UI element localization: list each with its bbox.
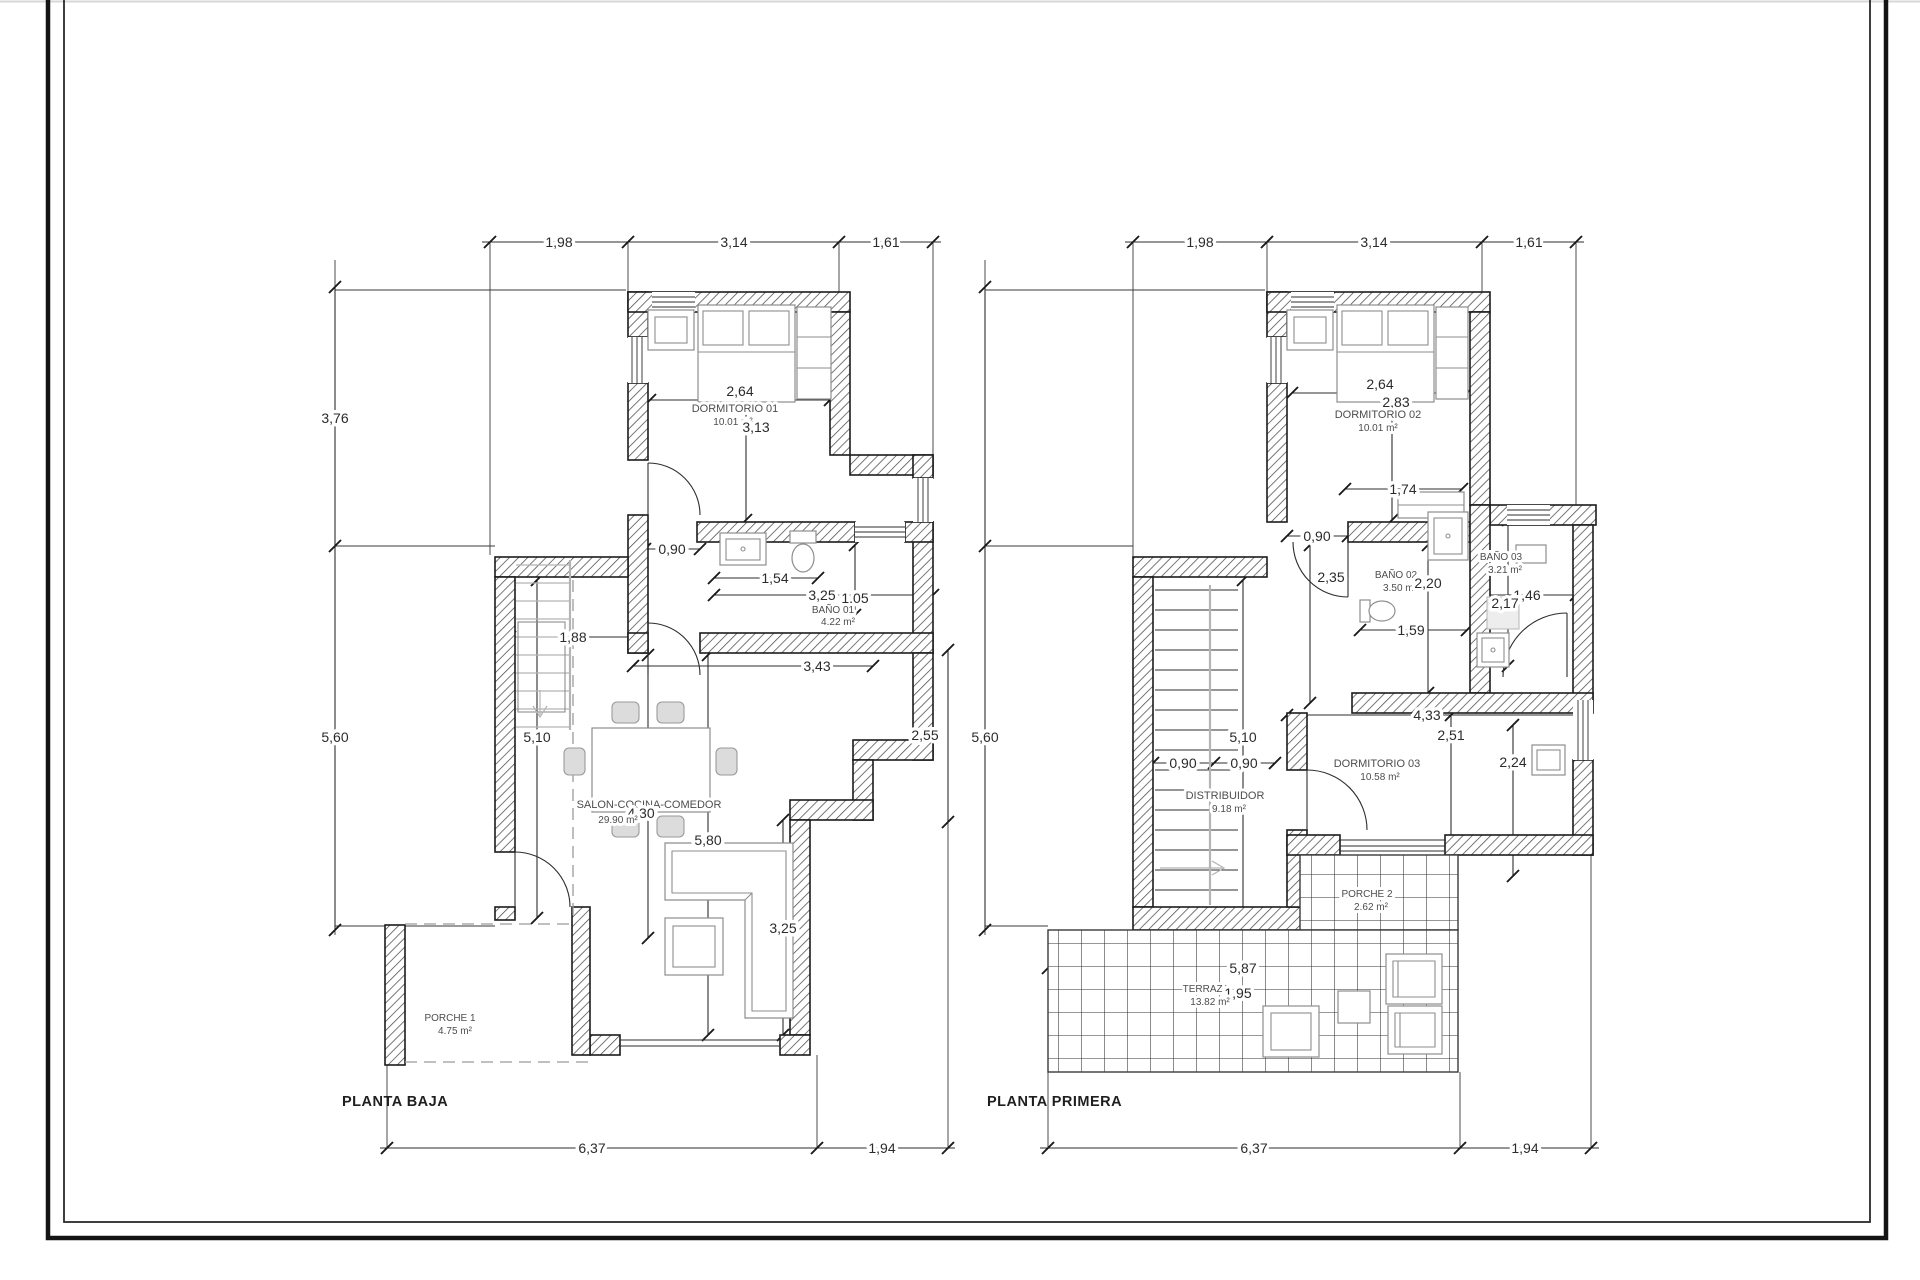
room-label: DISTRIBUIDOR <box>1186 790 1265 802</box>
dim-label: 2,17 <box>1491 595 1518 611</box>
dim-label: 5,10 <box>523 729 550 745</box>
chair <box>657 816 684 837</box>
room-area: 4.75 m² <box>438 1026 473 1037</box>
room-area: 3.50 m² <box>1383 583 1418 594</box>
dim-label: 0,90 <box>1169 755 1196 771</box>
page-background <box>0 0 1920 1280</box>
dim-label: 4,33 <box>1413 707 1440 723</box>
dim-label: 2,83 <box>1382 394 1409 410</box>
dim-label: 3,76 <box>321 410 348 426</box>
dim-label: 2,51 <box>1437 727 1464 743</box>
dim-label: 1,61 <box>1515 234 1542 250</box>
plan-title: PLANTA BAJA <box>342 1094 448 1110</box>
room-label: PORCHE 2 <box>1341 889 1393 900</box>
dim-label: 1,61 <box>872 234 899 250</box>
room-label: BAÑO 02 <box>1375 568 1418 581</box>
dim-label: 1,59 <box>1397 622 1424 638</box>
room-area: 29.90 m² <box>598 815 638 826</box>
room-area: 10.58 m² <box>1360 772 1400 783</box>
side-table <box>1338 991 1370 1023</box>
chair <box>716 748 737 775</box>
dim-label: 3,43 <box>803 658 830 674</box>
room-area: 4.22 m² <box>821 617 856 628</box>
dim-label: 0,90 <box>1230 755 1257 771</box>
dim-label: 0,90 <box>1303 528 1330 544</box>
dim-label: 1,98 <box>545 234 572 250</box>
dim-label: 5,80 <box>694 832 721 848</box>
dim-label: 3,25 <box>769 920 796 936</box>
room-label: DORMITORIO 03 <box>1334 758 1421 770</box>
dim-label: 5,10 <box>1229 729 1256 745</box>
dim-label: 1,74 <box>1389 481 1416 497</box>
plan-title: PLANTA PRIMERA <box>987 1094 1122 1110</box>
dim-label: 3,14 <box>1360 234 1387 250</box>
chair <box>657 702 684 723</box>
dim-label: 2,55 <box>911 727 938 743</box>
floorplan-canvas: 1,98 3,14 1,61 3,76 5,60 6,37 1,94 2,64 … <box>0 0 1920 1280</box>
dim-label: 2,64 <box>1366 376 1393 392</box>
dim-label: 2,64 <box>726 383 753 399</box>
dim-label: 5,60 <box>971 729 998 745</box>
room-label: DORMITORIO 02 <box>1335 409 1422 421</box>
room-label: BAÑO 03 <box>1480 550 1523 563</box>
room-area: 9.18 m² <box>1212 804 1247 815</box>
room-area: 3.21 m² <box>1488 565 1523 576</box>
room-area: 13.82 m² <box>1190 997 1230 1008</box>
dim-label: 1,05 <box>841 590 868 606</box>
dim-label: 1,98 <box>1186 234 1213 250</box>
room-label: PORCHE 1 <box>424 1013 476 1024</box>
dim-label: 1,94 <box>868 1140 895 1156</box>
dim-label: 1,88 <box>559 629 586 645</box>
wardrobe <box>1436 307 1468 399</box>
dim-label: 5,87 <box>1229 960 1256 976</box>
dim-label: 1,94 <box>1511 1140 1538 1156</box>
room-area: 2.62 m² <box>1354 902 1389 913</box>
dim-label: 0,90 <box>658 541 685 557</box>
dim-label: 3,13 <box>742 419 769 435</box>
room-label: DORMITORIO 01 <box>692 403 779 415</box>
wardrobe <box>797 307 831 399</box>
room-label: TERRAZA <box>1183 984 1230 995</box>
room-label: BAÑO 01 <box>812 603 855 616</box>
dim-label: 3,25 <box>808 587 835 603</box>
dim-label: 6,37 <box>1240 1140 1267 1156</box>
dim-label: 2,24 <box>1499 754 1526 770</box>
room-area: 10.01 m² <box>1358 423 1398 434</box>
chair <box>564 748 585 775</box>
dim-label: 1,54 <box>761 570 788 586</box>
dim-label: 5,60 <box>321 729 348 745</box>
dim-label: 6,37 <box>578 1140 605 1156</box>
dim-label: 2,20 <box>1414 575 1441 591</box>
toilet <box>790 531 816 543</box>
dim-label: 3,14 <box>720 234 747 250</box>
chair <box>612 702 639 723</box>
dim-label: 2,35 <box>1317 569 1344 585</box>
